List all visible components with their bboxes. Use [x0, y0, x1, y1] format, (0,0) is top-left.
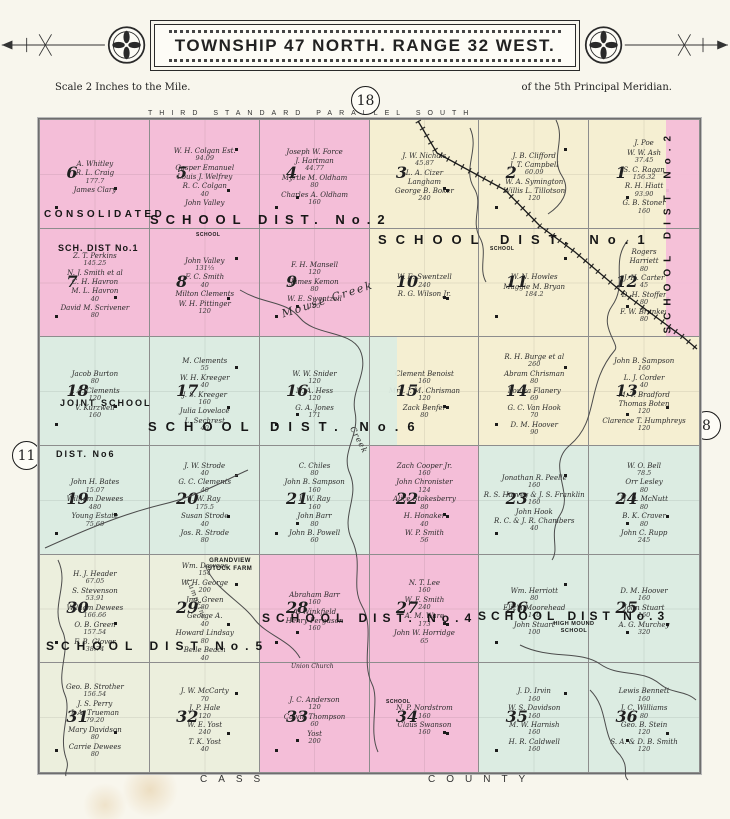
landowner-label: John B. Sampson160 — [614, 357, 674, 373]
section-tile-27: 27N. T. Lee160W. F. Smith240A. M. Ware17… — [370, 555, 480, 664]
landowner-label: Joseph W. Force — [286, 148, 343, 156]
section-tile-14: 14R. H. Burge et al260Abram Chrisman80Lo… — [479, 337, 589, 446]
landowner-label: Susan Strode40 — [181, 512, 229, 528]
map-grid: 6A. WhitleyR. L. Craig177.7James Clary5W… — [38, 118, 701, 774]
acreage-value: 40 — [181, 521, 229, 529]
section-number-2: 2 — [506, 163, 517, 182]
landowner-label: Henry Ferguson160 — [286, 617, 344, 633]
landowner-label: M. L. Havron40 — [71, 287, 118, 303]
page-number-left-value: 11 — [18, 448, 36, 464]
landowner-label: W. W. Ash37.45 — [627, 149, 661, 165]
landowner-label: D. H. Stoffer80 — [622, 291, 667, 307]
acreage-value: 70 — [181, 696, 229, 704]
acreage-value: 80 — [176, 638, 234, 646]
landowner-label: D. M. Hoover90 — [511, 421, 558, 437]
section-number-15: 15 — [396, 381, 418, 400]
landowner-label: Carrie Dewees80 — [69, 743, 121, 759]
landowner-label: J. D. Irvin160 — [518, 687, 551, 703]
section-tile-20: 20J. W. Strode40G. C. Clements40I. W. Ra… — [150, 446, 260, 555]
section-number-29: 29 — [176, 598, 198, 617]
plat-map-page: TOWNSHIP 47 NORTH. RANGE 32 WEST. Scale … — [0, 0, 730, 819]
landowner-label: J. W. McCarty70 — [181, 687, 229, 703]
landowner-label: R. G. Wilson Jr. — [398, 290, 451, 298]
landowner-label: H. Honaker40 — [404, 512, 445, 528]
section-number-19: 19 — [66, 489, 88, 508]
landowner-label: John Stuart100 — [514, 621, 555, 637]
landowner-label: John Valley — [185, 199, 224, 207]
acreage-value: 260 — [504, 361, 564, 369]
landowner-label: F. W. Brunker80 — [620, 308, 668, 324]
acreage-value: 94.09 — [174, 155, 236, 163]
page-number-top-value: 18 — [357, 93, 375, 109]
acreage-value: 240 — [187, 729, 222, 737]
acreage-value: 120 — [610, 746, 677, 754]
acreage-value: 100 — [514, 629, 555, 637]
landowner-label: W. O. Bell78.5 — [627, 462, 661, 478]
landowner-label: J. T. Campbell60.09 — [510, 161, 559, 177]
section-number-4: 4 — [286, 163, 297, 182]
section-tile-11: 11W. N. HowlesMaggie M. Bryan184.2 — [479, 229, 589, 338]
section-number-9: 9 — [286, 272, 297, 291]
section-tile-35: 35J. D. Irvin160W. S. Davidson160M. W. H… — [479, 663, 589, 772]
section-number-18: 18 — [66, 381, 88, 400]
acreage-value: 40 — [185, 425, 225, 433]
section-number-35: 35 — [506, 707, 528, 726]
landowner-label: C. Chiles80 — [299, 462, 331, 478]
landowner-label: J. Hartman44.77 — [295, 157, 333, 173]
acreage-value: 80 — [299, 470, 331, 478]
landowner-label: H. J. Header67.05 — [73, 570, 117, 586]
section-tile-18: 18Jacob Burton80J. A. Clements120V. Kurz… — [40, 337, 150, 446]
cass-label: CASS — [200, 774, 271, 785]
section-number-28: 28 — [286, 598, 308, 617]
section-tile-23: 23Jonathan R. Peelle160R. S. Harvey & J.… — [479, 446, 589, 555]
acreage-value: 160 — [509, 729, 560, 737]
landowner-label: R. H. Burge et al260 — [504, 353, 564, 369]
acreage-value: 245 — [621, 537, 668, 545]
acreage-value: 160 — [286, 625, 344, 633]
landowner-label: George B. Boker240 — [395, 187, 454, 203]
acreage-value: 80 — [68, 734, 122, 742]
acreage-value: 145.25 — [73, 260, 117, 268]
landowner-label: Belle Beach40 — [184, 646, 226, 662]
section-number-23: 23 — [506, 489, 528, 508]
section-tile-13: 13John B. Sampson160L. J. Corder40M. T. … — [589, 337, 699, 446]
landowner-label: M. Clements55 — [182, 357, 227, 373]
acreage-value: 156.54 — [66, 691, 124, 699]
landowner-label: Jos. R. Strode80 — [180, 529, 229, 545]
scale-note: Scale 2 Inches to the Mile. — [55, 82, 190, 93]
section-tile-5: 5W. H. Colgan Est.94.09Casper EmanuelLou… — [150, 120, 260, 229]
section-number-12: 12 — [616, 272, 638, 291]
landowner-label: B. K. Craver80 — [622, 512, 666, 528]
acreage-value: 200 — [181, 587, 228, 595]
acreage-value: 38.74 — [74, 646, 115, 654]
acreage-value: 70 — [508, 412, 561, 420]
acreage-value: 120 — [621, 729, 667, 737]
acreage-value: 160 — [281, 199, 348, 207]
acreage-value: 60.09 — [510, 169, 559, 177]
landowner-label: John B. Powell60 — [289, 529, 340, 545]
section-number-1: 1 — [616, 163, 627, 182]
acreage-value: 160 — [409, 587, 440, 595]
acreage-value: 90 — [511, 429, 558, 437]
section-tile-26: 26Wm. Herriott80Eliz'h Moorehead140John … — [479, 555, 589, 664]
acreage-value: 156.32 — [623, 174, 664, 182]
section-number-22: 22 — [396, 489, 418, 508]
section-tile-10: 10W. E. Swentzell240R. G. Wilson Jr. — [370, 229, 480, 338]
landowner-label: Clarence T. Humphreys120 — [602, 417, 685, 433]
acreage-value: 157.54 — [74, 629, 115, 637]
acreage-value: 120 — [602, 425, 685, 433]
landowner-label: F. B. Glover38.74 — [74, 638, 115, 654]
section-number-33: 33 — [286, 707, 308, 726]
acreage-value: 80 — [622, 521, 666, 529]
acreage-value: 131⅓ — [185, 265, 224, 273]
acreage-value: 40 — [71, 296, 118, 304]
map-title: TOWNSHIP 47 NORTH. RANGE 32 WEST. — [169, 30, 561, 62]
landowner-label: R. L. Craig177.7 — [76, 169, 114, 185]
acreage-value: 80 — [620, 316, 668, 324]
landowner-label: Charles A. Oldham160 — [281, 191, 348, 207]
acreage-value: 160 — [614, 365, 674, 373]
section-tile-30: 30H. J. Header67.05S. Stevenson53.91Will… — [40, 555, 150, 664]
section-tile-7: 7Z. T. Perkins145.25N. J. Smith et alC. … — [40, 229, 150, 338]
acreage-value: 40 — [184, 470, 225, 478]
landowner-label: Willis L. Tillotson120 — [503, 187, 565, 203]
landowner-label: Thomas Boten120 — [619, 400, 670, 416]
section-tile-25: 25D. M. Hoover160John Stuart160A. G. Mur… — [589, 555, 699, 664]
section-number-8: 8 — [176, 272, 187, 291]
landowner-label: W. H. Pittinger120 — [179, 300, 231, 316]
landowner-label: F. H. Mansell120 — [291, 261, 338, 277]
acreage-value: 67.05 — [73, 578, 117, 586]
landowner-label: A. Whitley — [77, 160, 114, 168]
section-tile-6: 6A. WhitleyR. L. Craig177.7James Clary — [40, 120, 150, 229]
landowner-label: V. Kurzweil160 — [75, 404, 115, 420]
section-number-21: 21 — [286, 489, 308, 508]
section-tile-34: 34N. P. Nordstrom160Claus Swanson160 — [370, 663, 480, 772]
banner-flourish-left — [0, 25, 107, 65]
section-number-6: 6 — [66, 163, 77, 182]
section-number-11: 11 — [506, 272, 528, 291]
section-number-16: 16 — [286, 381, 308, 400]
landowner-label: Julia Lovelace — [180, 407, 230, 415]
acreage-value: 40 — [404, 521, 445, 529]
title-banner: TOWNSHIP 47 NORTH. RANGE 32 WEST. — [0, 14, 730, 76]
section-tile-1: 1J. PoeW. W. Ash37.45S. C. Ragan156.32R.… — [589, 120, 699, 229]
page-number-left: 11 — [12, 441, 41, 470]
acreage-value: 37.45 — [627, 157, 661, 165]
section-tile-19: 19John H. Bates15.07William Dewees480You… — [40, 446, 150, 555]
landowner-label: James Clary — [74, 186, 117, 194]
acreage-value: 93.90 — [625, 191, 663, 199]
acreage-value: 40 — [184, 655, 226, 663]
landowner-label: James Kemon80 — [291, 278, 339, 294]
acreage-value: 154 — [182, 570, 228, 578]
landowner-label: David M. Scrivener80 — [61, 304, 130, 320]
landowner-label: J. Poe — [634, 139, 654, 147]
section-number-36: 36 — [616, 707, 638, 726]
acreage-value: 160 — [75, 412, 115, 420]
acreage-value: 160 — [397, 470, 452, 478]
section-number-7: 7 — [66, 272, 77, 291]
landowner-label: H. R. Caldwell160 — [509, 738, 560, 754]
section-number-10: 10 — [396, 272, 418, 291]
landowner-label: John Valley131⅓ — [185, 257, 224, 273]
landowner-label: Harriett80 — [630, 257, 659, 273]
section-tile-2: 2J. B. CliffordJ. T. Campbell60.09W. A. … — [479, 120, 589, 229]
acreage-value: 171 — [295, 412, 334, 420]
acreage-value: 160 — [182, 399, 227, 407]
section-number-27: 27 — [396, 598, 418, 617]
acreage-value: 120 — [503, 195, 565, 203]
banner-rosette-right — [584, 23, 623, 67]
acreage-value: 160 — [397, 729, 451, 737]
section-number-17: 17 — [176, 381, 198, 400]
landowner-label: Milton Clements — [175, 290, 234, 298]
landowner-label: Young Estate75.69 — [72, 512, 119, 528]
landowner-label: John W. Horridge65 — [394, 629, 455, 645]
landowner-label: Howard Lindsay80 — [176, 629, 234, 645]
landowner-label: G. C. Van Hook70 — [508, 404, 561, 420]
landowner-label: R. H. Hiatt93.90 — [625, 182, 663, 198]
landowner-label: Jonathan R. Peelle160 — [502, 474, 567, 490]
landowner-label: G. B. Stoner160 — [622, 199, 665, 215]
district-strip — [666, 120, 699, 229]
acreage-value: 80 — [291, 286, 339, 294]
acreage-value: 65 — [394, 638, 455, 646]
section-number-24: 24 — [616, 489, 638, 508]
landowner-label: G. A. Jones171 — [295, 404, 334, 420]
acreage-value: 240 — [395, 195, 454, 203]
section-tile-24: 24W. O. Bell78.5Orr Lesley80H. D. McNutt… — [589, 446, 699, 555]
parallel-label: THIRD STANDARD PARALLEL SOUTH — [148, 110, 475, 117]
acreage-value: 120 — [619, 408, 670, 416]
landowner-label: L. Sechrest40 — [185, 417, 225, 433]
landowner-label: Lewis Bennett160 — [619, 687, 670, 703]
landowner-label: L. A. Cizer — [406, 169, 443, 177]
landowner-label: W. E. Swentzell195 — [287, 295, 342, 311]
section-number-31: 31 — [66, 707, 88, 726]
section-tile-12: 12RogersHarriett80J. H. Carter45D. H. St… — [589, 229, 699, 338]
acreage-value: 44.77 — [295, 165, 333, 173]
landowner-label: N. T. Lee160 — [409, 579, 440, 595]
banner-rosette-left — [107, 23, 146, 67]
acreage-value: 120 — [291, 269, 338, 277]
acreage-value: 160 — [619, 696, 670, 704]
landowner-label: Wm. Dewees154 — [182, 562, 228, 578]
landowner-label: J. B. Clifford — [513, 152, 556, 160]
landowner-label: Z. T. Perkins145.25 — [73, 252, 117, 268]
section-tile-8: 8John Valley131⅓F. C. Smith40Milton Clem… — [150, 229, 260, 338]
section-tile-16: 16W. W. Snider120N. A. Hess120G. A. Jone… — [260, 337, 370, 446]
acreage-value: 320 — [619, 629, 670, 637]
landowner-label: R. C. & J. R. Chambers40 — [494, 517, 574, 533]
section-number-3: 3 — [396, 163, 407, 182]
landowner-label: R. S. Harvey & J. S. Franklin160 — [484, 491, 585, 507]
section-tile-17: 17M. Clements55W. H. Kreeger40J. S. Kree… — [150, 337, 260, 446]
section-number-14: 14 — [506, 381, 528, 400]
acreage-value: 160 — [484, 499, 585, 507]
banner-flourish-right — [623, 25, 730, 65]
acreage-value: 78.5 — [627, 470, 661, 478]
title-box: TOWNSHIP 47 NORTH. RANGE 32 WEST. — [154, 24, 576, 67]
section-tile-22: 22Zach Cooper Jr.160John Chronister124Al… — [370, 446, 480, 555]
section-tile-15: 15Clement Benoist160Mrs. J. M. Chrisman1… — [370, 337, 480, 446]
page-number-right-value: 8 — [702, 418, 711, 434]
section-tile-28: 28Abraham Barr160A. WinkfieldHenry Fergu… — [260, 555, 370, 664]
district-strip — [666, 229, 699, 338]
landowner-label: A. G. Murchey320 — [619, 621, 670, 637]
acreage-value: 55 — [182, 365, 227, 373]
landowner-label: Yost200 — [307, 730, 322, 746]
acreage-value: 160 — [509, 746, 560, 754]
section-number-34: 34 — [396, 707, 418, 726]
section-tile-32: 32J. W. McCarty70J. P. Hale120W. E. Yost… — [150, 663, 260, 772]
acreage-value: 60 — [289, 537, 340, 545]
page-number-top: 18 — [351, 86, 380, 115]
acreage-value: 173 — [405, 621, 444, 629]
landowner-label: Rogers — [632, 248, 657, 256]
landowner-label: R. C. Colgan40 — [183, 182, 227, 198]
landowner-label: John Barr80 — [297, 512, 331, 528]
acreage-value: 160 — [518, 696, 551, 704]
acreage-value: 177.7 — [76, 178, 114, 186]
section-tile-3: 3J. W. Nichols45.87L. A. CizerLanghamGeo… — [370, 120, 480, 229]
section-tile-31: 31Geo. B. Strother156.54J. S. PerryJ. A.… — [40, 663, 150, 772]
landowner-label: C. H. Havron — [72, 278, 118, 286]
section-number-30: 30 — [66, 598, 88, 617]
acreage-value: 40 — [183, 191, 227, 199]
landowner-label: W. P. Smith56 — [405, 529, 444, 545]
acreage-value: 160 — [622, 208, 665, 216]
landowner-label: Zach Cooper Jr.160 — [397, 462, 452, 478]
section-tile-21: 21C. Chiles80John B. Sampson160I. W. Ray… — [260, 446, 370, 555]
landowner-label: Langham — [408, 178, 441, 186]
acreage-value: 195 — [287, 303, 342, 311]
landowner-label: J. W. Nichols45.87 — [402, 152, 446, 168]
landowner-label: John Hook — [516, 508, 553, 516]
landowner-label: Geo. B. Strother156.54 — [66, 683, 124, 699]
acreage-value: 40 — [185, 282, 224, 290]
landowner-label: O. B. Green157.54 — [74, 621, 115, 637]
acreage-value: 80 — [180, 537, 229, 545]
landowner-label: Zack Benfer80 — [403, 404, 446, 420]
landowner-label: Mary Davidson80 — [68, 726, 122, 742]
section-number-5: 5 — [176, 163, 187, 182]
acreage-value: 184.2 — [503, 291, 565, 299]
acreage-value: 120 — [179, 308, 231, 316]
section-number-26: 26 — [506, 598, 528, 617]
acreage-value: 80 — [61, 312, 130, 320]
section-number-25: 25 — [616, 598, 638, 617]
acreage-value: 56 — [405, 537, 444, 545]
acreage-value: 40 — [189, 746, 221, 754]
section-tile-33: 33J. C. Anderson120Calvin Thompson60Yost… — [260, 663, 370, 772]
section-tile-9: 9F. H. Mansell120James Kemon80W. E. Swen… — [260, 229, 370, 338]
acreage-value: 80 — [69, 751, 121, 759]
acreage-value: 45.87 — [402, 160, 446, 168]
landowner-label: W. H. George200 — [181, 579, 228, 595]
landowner-label: S. A. & D. B. Smith120 — [610, 738, 677, 754]
landowner-label: T. K. Yost40 — [189, 738, 221, 754]
acreage-value: 80 — [282, 182, 347, 190]
section-number-20: 20 — [176, 489, 198, 508]
landowner-label: W. H. Colgan Est.94.09 — [174, 147, 236, 163]
acreage-value: 40 — [494, 525, 574, 533]
section-number-32: 32 — [176, 707, 198, 726]
meridian-note: of the 5th Principal Meridian. — [522, 82, 672, 93]
acreage-value: 40 — [187, 621, 222, 629]
acreage-value: 200 — [307, 738, 322, 746]
acreage-value: 80 — [622, 299, 667, 307]
county-label: COUNTY — [428, 774, 536, 785]
section-number-13: 13 — [616, 381, 638, 400]
section-tile-29: 29Wm. Dewees154W. H. George200Jno. Green… — [150, 555, 260, 664]
acreage-value: 80 — [297, 521, 331, 529]
landowner-label: J. W. Strode40 — [184, 462, 225, 478]
landowner-label: S. C. Ragan156.32 — [623, 166, 664, 182]
landowner-label: F. C. Smith40 — [185, 273, 224, 289]
acreage-value: 80 — [403, 412, 446, 420]
acreage-value: 75.69 — [72, 521, 119, 529]
section-tile-4: 4Joseph W. ForceJ. Hartman44.77Myrtle M.… — [260, 120, 370, 229]
landowner-label: John C. Rupp245 — [621, 529, 668, 545]
section-tile-36: 36Lewis Bennett160J. C. Williams80Geo. B… — [589, 663, 699, 772]
